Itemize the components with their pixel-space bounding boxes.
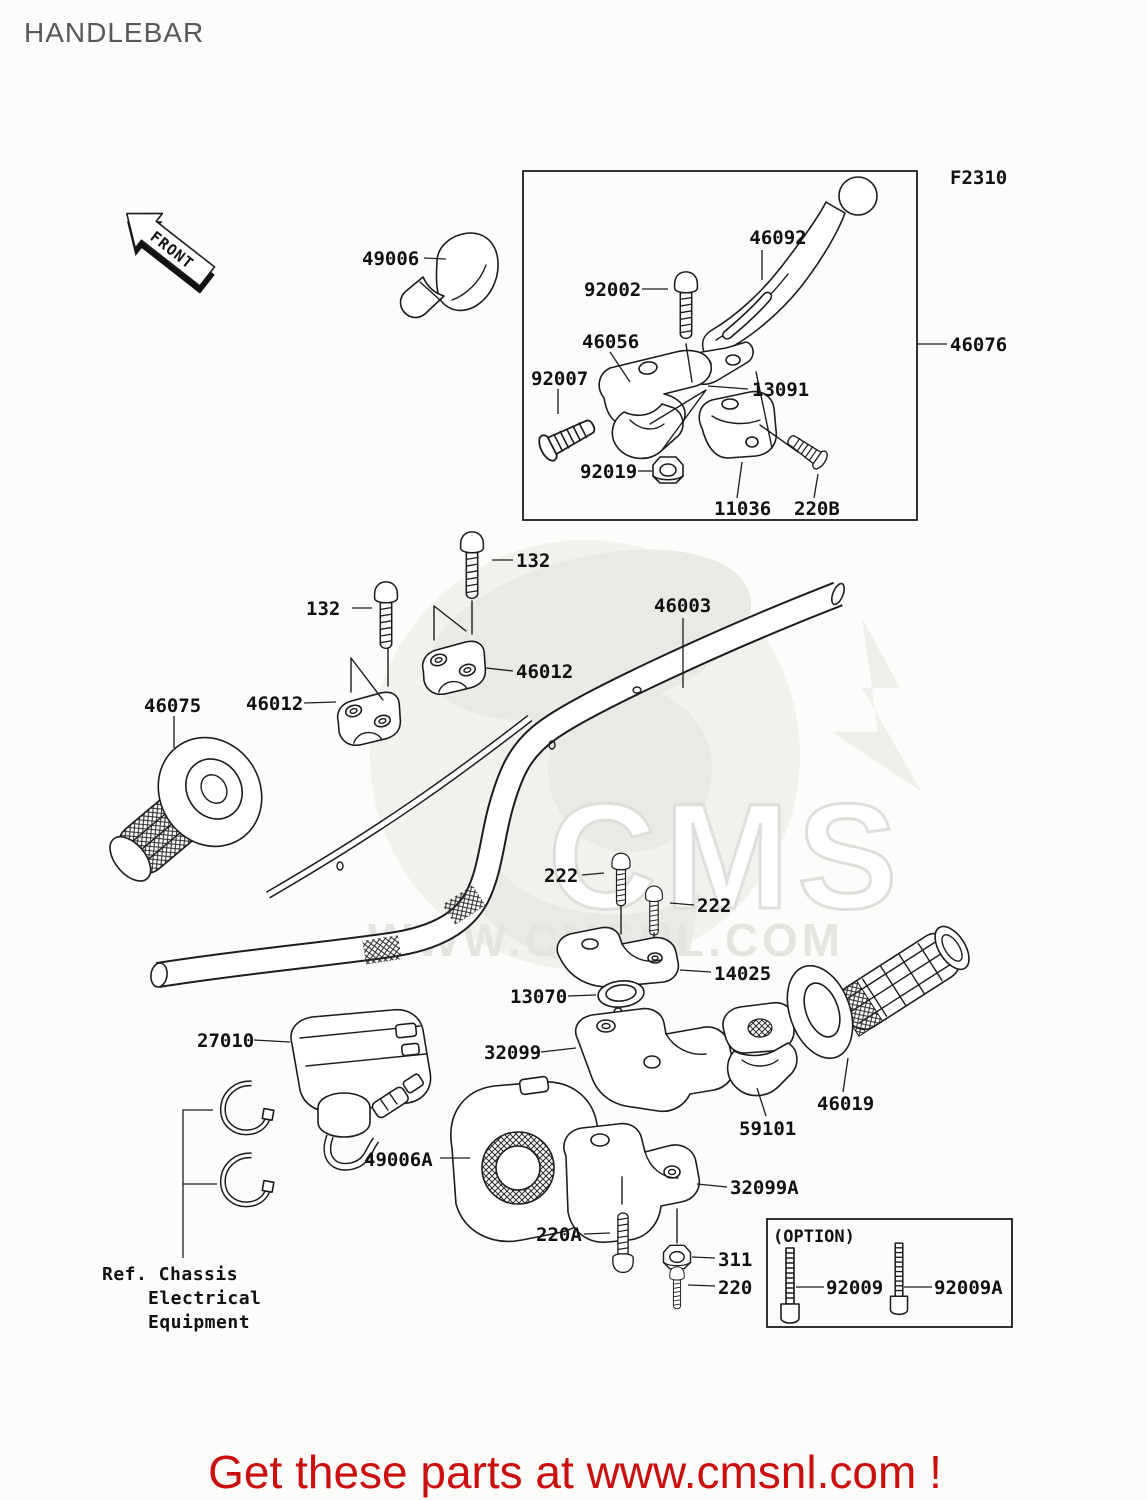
diagram-svg: CMS WWW.CMSNL.COM HANDLEBAR FRONT xyxy=(0,0,1147,1500)
part-46092-lever-drawing xyxy=(688,177,877,384)
part-92009A-bolt-drawing xyxy=(890,1243,907,1314)
part-label-132: 132 xyxy=(516,550,550,572)
part-label-13091: 13091 xyxy=(752,379,809,401)
leader-line-220 xyxy=(688,1285,715,1286)
leader-line-46019 xyxy=(843,1058,848,1092)
part-label-46076: 46076 xyxy=(950,334,1007,356)
part-label-F2310: F2310 xyxy=(950,167,1007,189)
leader-line-46012 xyxy=(304,702,336,703)
footer-promo-text[interactable]: Get these parts at www.cmsnl.com ! xyxy=(208,1446,942,1498)
leader-line-13091 xyxy=(708,386,748,389)
part-220b-screw-drawing xyxy=(784,430,831,471)
part-label-46012: 46012 xyxy=(246,693,303,715)
part-label-222: 222 xyxy=(697,895,731,917)
leader-line-11036 xyxy=(737,462,742,498)
part-132-bolt-left-drawing xyxy=(375,582,398,649)
part-46075-grip-drawing xyxy=(102,718,282,888)
ref-chassis-note: Ref. Chassis Electrical Equipment xyxy=(102,1264,261,1333)
part-11036-holder-drawing xyxy=(699,392,776,458)
part-label-11036: 11036 xyxy=(714,498,771,520)
part-label-220A: 220A xyxy=(536,1224,582,1246)
part-label-92009: 92009 xyxy=(826,1277,883,1299)
parts-diagram-page: CMS WWW.CMSNL.COM HANDLEBAR FRONT xyxy=(0,0,1147,1500)
leader-line-32099A xyxy=(697,1184,727,1187)
ref-note-line-1: Ref. Chassis xyxy=(102,1264,238,1285)
part-label-14025: 14025 xyxy=(714,963,771,985)
part-label-46056: 46056 xyxy=(582,331,639,353)
ref-note-line-2: Electrical xyxy=(148,1288,261,1309)
part-label-311: 311 xyxy=(718,1249,752,1271)
part-92002-bolt-drawing xyxy=(675,272,698,339)
leader-line-311 xyxy=(692,1257,715,1258)
option-box-label: (OPTION) xyxy=(773,1227,855,1247)
part-32099A-bracket-drawing xyxy=(564,1124,699,1243)
part-label-46003: 46003 xyxy=(654,595,711,617)
leader-line-27010 xyxy=(254,1040,290,1042)
part-label-49006: 49006 xyxy=(362,248,419,270)
part-59101-holder-drawing xyxy=(723,1003,797,1096)
ref-note-line-3: Equipment xyxy=(148,1312,250,1333)
leader-line-220B xyxy=(814,474,818,498)
part-label-27010: 27010 xyxy=(197,1030,254,1052)
part-label-32099A: 32099A xyxy=(730,1177,799,1199)
part-13091-perch-drawing xyxy=(599,350,711,458)
front-arrow: FRONT xyxy=(110,196,225,301)
page-title: HANDLEBAR xyxy=(24,17,204,48)
part-label-132: 132 xyxy=(306,598,340,620)
part-92019-nut-drawing xyxy=(653,457,683,483)
part-49006-cover-drawing xyxy=(401,233,499,318)
part-label-222: 222 xyxy=(544,865,578,887)
leader-line-14025 xyxy=(680,970,711,972)
part-label-46075: 46075 xyxy=(144,695,201,717)
leader-line-32099 xyxy=(541,1048,576,1052)
cable-clip-lower-drawing xyxy=(220,1152,277,1207)
part-label-13070: 13070 xyxy=(510,986,567,1008)
part-label-46019: 46019 xyxy=(817,1093,874,1115)
leader-line-13070 xyxy=(568,995,596,996)
part-label-92009A: 92009A xyxy=(934,1277,1003,1299)
part-311-nut-drawing xyxy=(664,1245,691,1268)
part-label-49006A: 49006A xyxy=(364,1149,433,1171)
part-label-220: 220 xyxy=(718,1277,752,1299)
part-label-92019: 92019 xyxy=(580,461,637,483)
part-label-92007: 92007 xyxy=(531,368,588,390)
part-label-59101: 59101 xyxy=(739,1118,796,1140)
part-label-220B: 220B xyxy=(794,498,840,520)
part-label-92002: 92002 xyxy=(584,279,641,301)
cable-clip-upper-drawing xyxy=(220,1080,277,1135)
part-92007-screw-drawing xyxy=(536,413,600,464)
part-32099-perch-drawing xyxy=(576,1009,734,1112)
part-92009-bolt-drawing xyxy=(781,1248,799,1323)
part-label-46092: 46092 xyxy=(749,227,806,249)
part-label-46012: 46012 xyxy=(516,661,573,683)
part-27010-switch-drawing xyxy=(291,1010,431,1167)
part-220-screw-drawing xyxy=(670,1267,684,1309)
part-label-32099: 32099 xyxy=(484,1042,541,1064)
